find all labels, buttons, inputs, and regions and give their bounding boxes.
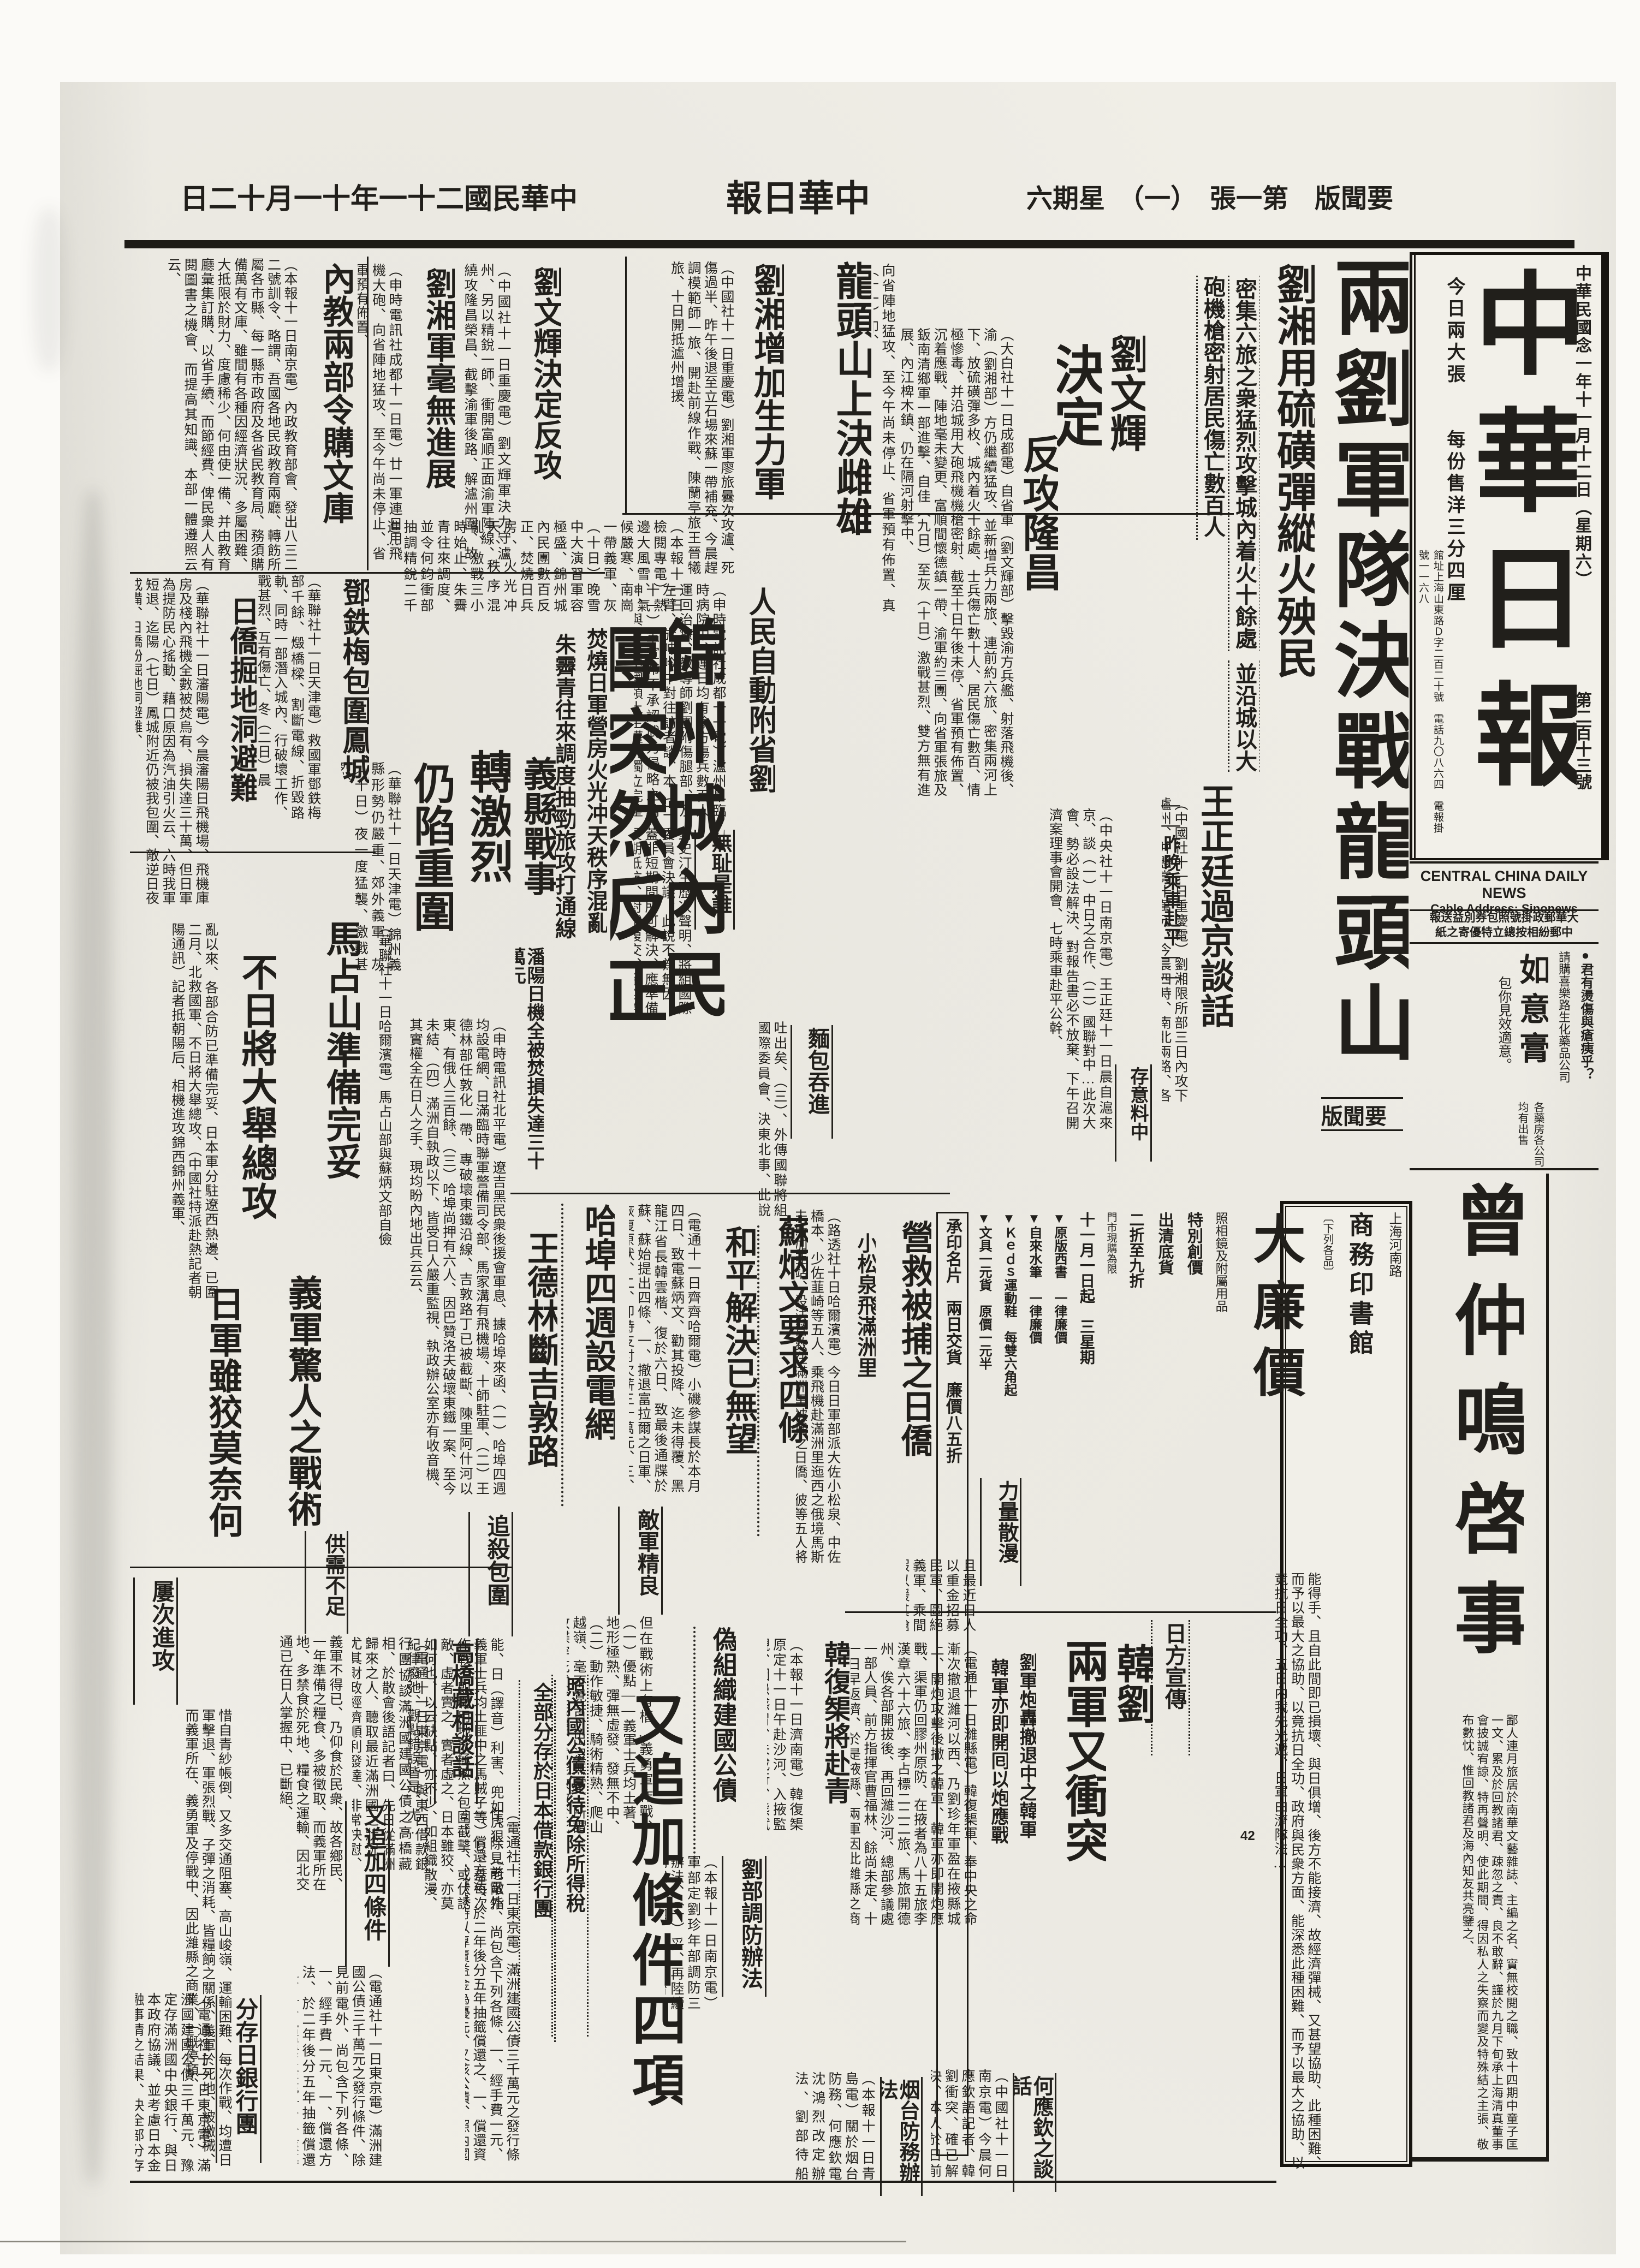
fourmore-body: （電通社十一日東京電）滿洲建國公債三千萬元之發行條件、除見前電外、尚包含下列各條… [298,1965,382,2167]
bonds-subhead-2: 全部分存於日本借款銀行團 [519,1680,556,2042]
paper-name-header: 報日華中 [726,169,912,216]
page-fold-line [0,2241,906,2242]
wangzhengting-headline: 王正廷過京談話 [1184,783,1233,1094]
wangzhengting-subhead: ——昨晚乘車赴平—— [1152,794,1180,1062]
mazhanshan-body-left: 亂以來、各部合防已準備完妥、日本軍分駐遼西熱邊、已圍二月、北救國軍、不日將大舉總… [136,922,218,1299]
scattered-kicker: 力量散漫 [980,1478,1021,1586]
masthead-sheets: 今日兩大張 [1444,277,1464,386]
hanliu-subhead-1: 劉軍炮轟撤退中之韓軍 [1009,1653,1036,1893]
ruyi-ad-availability: 各藥房各公司 均有出售 [1514,1102,1546,1167]
liuwenhui-hl-3: 反攻隆昌 [1015,434,1058,740]
japanese-shelter-headline: 日僑掘地洞避難 [214,596,257,853]
bonds-subhead-1: 照內國公債優待免除所得稅 [551,1675,589,2037]
press-ad-city: 上海河南路 [1384,1212,1404,2156]
mazhanshan-headline-1: 馬占山準備完妥 [308,920,360,1253]
yixian-headline-2: 轉激烈 [460,749,510,913]
banner-headline: 兩劉軍隊決戰龍頭山 [1315,255,1409,1096]
zeng-notice-title: 曾仲鳴啓事 [1446,1181,1524,1705]
banner-section-label: 版聞要 [1321,1097,1403,1131]
banner-subhead-2: 密集六旅之衆猛烈攻擊城內着火十餘處 [1228,276,1260,651]
banner-subhead-group: 密集六旅之衆猛烈攻擊城內着火十餘處 並沿城以大砲機槍密射居民傷亡數百人 [1190,276,1260,789]
bottom-rule [130,2181,1276,2183]
liuwenhui2-body: （中國社十一日重慶電）劉文輝軍決力守瀘州、另以精銳一師、衝開富順正面渝軍陣線、繞… [463,263,511,561]
hanfuju-headline: 韓復榘將赴青 [808,1640,849,1829]
subingwen-body: （電通十一日齊齊哈爾電）小磯參謀長於本月四日、致電蘇炳文、勸其投降、迄未得覆、黑… [629,1204,701,1493]
english-paper-name: CENTRAL CHINA DAILY NEWS [1410,868,1599,902]
harbin-net-headline: 哈埠四週設電網 [561,1204,615,1507]
chase-kicker: 追殺包圍 [468,1512,513,1636]
yixian-headline-1: 義縣戰事 [512,756,556,936]
rescue-subhead: 小松泉飛滿洲里 [845,1233,876,1495]
dengtiemei-body: （華聯社十一日天津電）救國軍鄧鉄梅部千餘、燬橋樑、割斷電線、折毀路軌、同時一部潛… [257,574,321,820]
heyingqin-kicker: 何應欽之談話 [1013,2073,1056,2192]
supply-kicker: 供需不足 [305,1531,348,1634]
deposit-kicker: 分存日銀行團 [216,1995,262,2163]
hanliu-headline-1: 韓劉 [1108,1643,1153,1747]
mazhanshan-headline-2: 不日將大舉總攻 [225,953,276,1296]
yantai-body: （本報十一日青島電）關於烟台防務、何應欽電沈鴻烈改定辦法、劉部待船到、即陸續開拔… [794,2071,875,2181]
masthead-title: 中華日報 [1463,266,1577,844]
zeng-notice-body: 鄙人連月旅居於南華文藝雜誌、主編之名、實無校閱之職、致十四期中童子匡一文、累及於… [1425,1714,1518,2151]
banner-subhead-1: 劉湘用硫磺彈縱火殃民 [1262,263,1315,853]
grid-rule-v2 [625,257,627,513]
continuation-columns: 能得手、且自此間即已損壞、與日俱增、後方不能接濟、故經濟彈械、又甚望協助、此種困… [1193,1572,1321,2170]
wenku-headline: 內教兩部令購文庫 [301,262,353,570]
grid-rule-v1 [367,257,369,570]
ruyi-ad-hook: ●君有燙傷與瘡痍乎？ [1576,949,1595,1162]
postal-notice: 報送益別券包照號掛政郵華大 紙之寄優特立總按相紛郵中 [1410,910,1599,944]
english-title-block: CENTRAL CHINA DAILY NEWS Cable Address: … [1410,861,1599,911]
masthead-price: 每份售洋三分四厘 [1444,430,1464,604]
wangzhengting-body: （中央社十一日南京電）王正廷十一日晨自滬來京、談（一）中日之合作、（二）國聯對中… [1025,808,1113,1130]
wangzhengting-kicker: 存意料中 [1115,1064,1152,1162]
newspaper-page: 日二十月一十年一十二國民華中 報日華中 六期星 （一） 張一第 版聞要 中華民國… [0,0,1640,2268]
liuxiang-reinforce-headline: 劉湘增加生力軍 [738,263,784,574]
subingwen-headline-2: 和平解決已無望 [707,1225,759,1537]
liuwenhui-hl-1: 劉文輝 [1102,334,1145,563]
jinzhou-headline-col1: 錦州城內民 [669,616,724,1069]
wangdelin-headline: 王德林斷吉敦路 [509,1231,557,1545]
fourmore-body2: （電通社十一日東京電）滿洲建國公債三千萬元之發行條件、除見前電外、尚包含下列各條… [465,1807,520,2162]
longtoushan-body: 向省陣地猛攻、至今午尚未停止、省軍預有佈置、真（十一）印、 [874,263,895,612]
edition-date: 日二十月一十年一十二國民華中 [180,176,650,218]
scan-stain-left [74,491,112,2183]
liuwenhui-body: （大白社十一日成都電）自省軍（劉文輝部）擊毀渝方兵艦、射落飛機後、渝（劉湘部）方… [896,328,1014,797]
takahashi-kicker: 高橋藏相談話 [434,1639,478,1804]
masthead-address: 館址上海山東路Ｄ字二百二十號 電話九〇八六四 電報掛號一一六八 [1416,550,1445,834]
heyingqin-body: （中國社十一日南京電）今晨何應欽語記者、韓劉衝突、確已解決、本人於日前電沈鴻烈、… [931,2069,1008,2178]
hanfuju-body: （本報十一日濟南電）韓復榘原定十一日午赴沙河、入掖監視、因患感冒、未成行、熊斌十… [767,1638,803,1831]
postal-line2: 紙之寄優特立總按相紛郵中 [1410,925,1599,940]
zeng-border-right [1546,1174,1549,2162]
tactics-kicker: 屢次進攻 [133,1578,178,1705]
jinzhou-subhead-3: 潘陽日機全被焚損失達三十萬元 [515,947,544,1171]
ruyi-ad-store: 請購喜樂路生化藥品公司 [1555,951,1572,1164]
scattered-body: 且最近日人以重金招募民軍、圖絕義軍、乘間假以鍰其鎗械、復運掖… [906,1558,976,1632]
supply-body: 義軍不得已、乃仰食於民衆、故各鄉民、一年準備之糧食、多被徵取、而義軍所在地、多禁… [245,1635,343,1891]
noprogress-body: （申時電訊社成都十一日電）廿一軍連日用飛機大砲、向省陣地猛攻、至今午尚未停止、省… [358,263,402,561]
grid-rule-5 [845,1611,1276,1613]
press-ad-store: 商務印書館 [1341,1212,1378,2156]
jinzhou-headline-col2: 團突然反正 [610,622,666,1075]
press-ad-note: 〔下列各品〕 [1319,1212,1335,2156]
zeng-notice: 曾仲鳴啓事 鄙人連月旅居於南華文藝雜誌、主編之名、實無校閱之職、致十四期中童子匡… [1417,1174,1540,2162]
enemy-elite-kicker: 敵軍精良 [618,1507,663,1615]
hanliu-kicker: 日方宣傳 [1151,1620,1190,1755]
bonds-headline-2: 又追加條件四項 [591,1691,682,2117]
edition-info: 六期星 （一） 張一第 版聞要 [1026,177,1441,218]
tactics-headline-2: 日軍雖狡莫奈何 [192,1285,241,1629]
scan-stain-topleft [33,207,66,371]
noprogress-headline: 劉湘軍毫無進展 [407,267,455,557]
grid-rule-6 [130,1567,512,1568]
bonds-headline-1: 偽組織建國公債 [693,1627,736,1867]
zeng-border-bottom [1398,2157,1549,2162]
deposit-body: （電通社十一日東京電）滿洲國建國公債三千萬元、豫定存滿洲國中央銀行、與日本政府協… [135,1992,211,2172]
header-rule [124,240,1574,248]
liuwenhui2-headline: 劉文輝決定反攻 [514,266,561,545]
liubu-kicker: 劉部調防辦法 [722,1856,766,1997]
liuwenhui-hl-2: 決定 [1057,343,1102,485]
jinzhou-subhead-1: 焚燒日軍營房火光冲天秩序混亂 [577,628,607,1026]
hanliu-body: （電通十一日濰縣電）韓復榘軍、奉中央之命漸次撤退濰河以西、乃劉珍年軍盈在掖縣城上… [851,1642,977,1926]
harbin-net-body: （申時電訊社北平電）遼吉黑民衆後援會軍息、據哈埠來函、（一）哈埠四週均設電網、日… [378,1018,506,1496]
yixian-headline-3: 仍陷重圍 [405,761,453,974]
people-join-headline: 人民自動附省劉 [729,587,775,827]
yantai-kicker: 烟台防務辦法 [880,2077,923,2196]
grid-rule-3 [622,513,1234,515]
ruyi-ad-product-name: 如意膏 [1516,953,1548,1095]
hanliu-subhead-2: 韓軍亦即開囘以炮應戰 [982,1658,1008,1898]
postal-line1: 報送益別券包照號掛政郵華大 [1410,910,1599,925]
hanliu-headline-2: 兩軍又衝突 [1041,1639,1106,1884]
grid-rule-4 [510,1193,950,1194]
dengtiemei-headline: 鄧鉄梅包圍鳳城 [326,578,369,823]
grid-rule-1 [130,572,605,574]
ruyi-ad-promise: 包你見效適意。 [1494,976,1513,1156]
wenku-body: （本報十一日南京電）內政教育部會、發出八三二二號訓令、略謂、吾國各地民政教育兩廳… [136,258,298,572]
rescue-headline: 營救被捕之日僑 [880,1220,931,1515]
longtoushan-headline: 龍頭山上決雌雄 [820,261,871,621]
bread-kicker: 麵包吞進 [791,1025,833,1139]
ruyi-ad: ●君有燙傷與瘡痍乎？ 請購喜樂路生化藥品公司 如意膏 包你見效適意。 各藥房各公… [1410,943,1599,1170]
bread-body: 吐出矣、（三）、外傳國聯將組國際委員會、決東北事、此說不為無因、蓋東北義軍、已使… [759,1021,787,1217]
fourmore-kicker: 又追加四條件 [345,1801,390,1967]
rescue-body: （路透社十日哈爾濱電）今日日軍部派大佐小松泉、中佐橋本、少佐韮崎等五人、乘飛機赴… [796,1209,841,1564]
masthead-box: 中華民國念一年十一月十二日（星期六） 第二百十三號 中華日報 今日兩大張 每份售… [1410,252,1609,860]
grid-rule-2 [130,852,376,853]
japanese-shelter-body: （華聯社十一日瀋陽電）今晨瀋陽日飛機場、飛機庫房及棧內飛機全數被焚烏有、損失達三… [135,578,209,905]
